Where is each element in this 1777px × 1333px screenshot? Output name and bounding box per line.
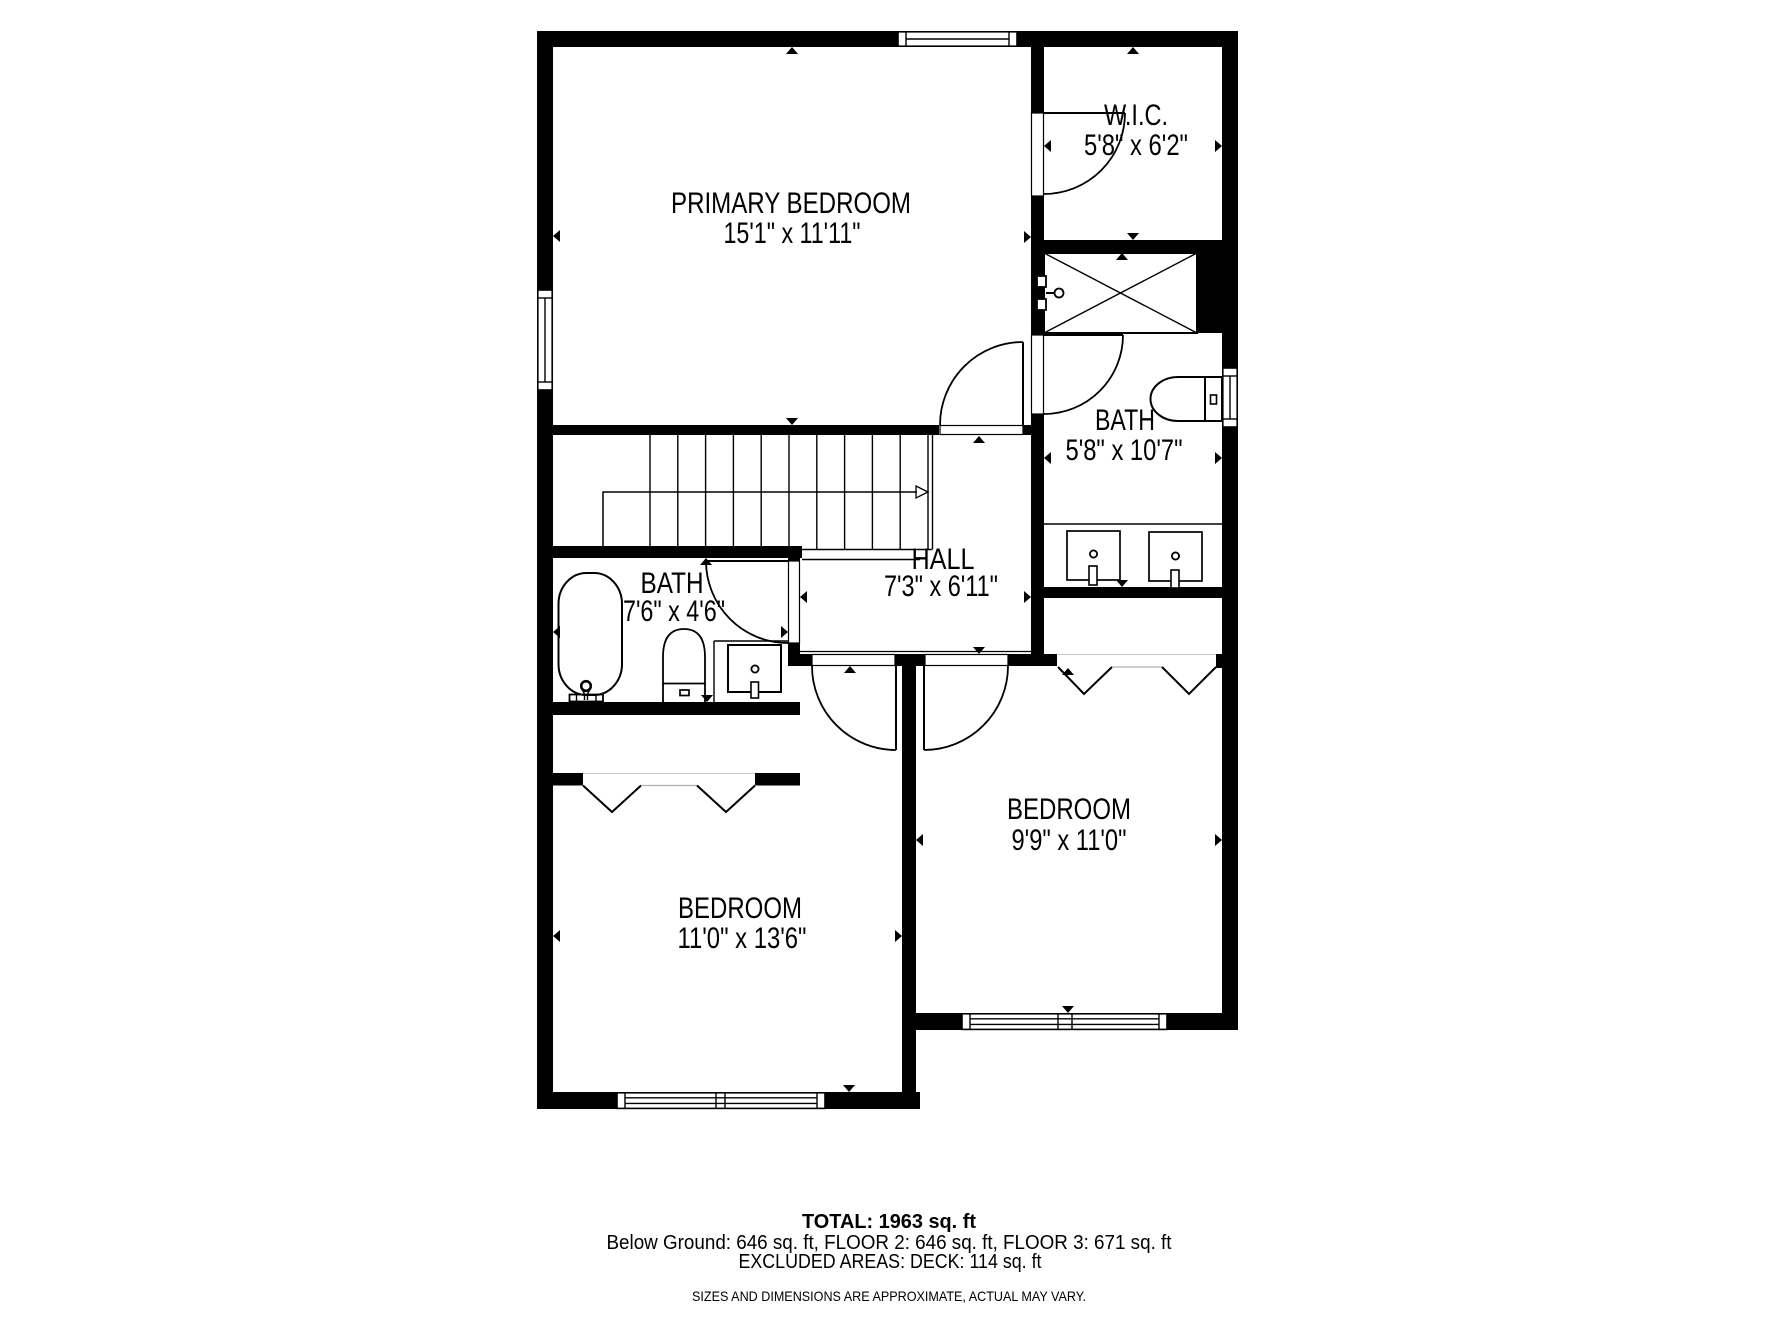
svg-text:SIZES AND DIMENSIONS ARE APPRO: SIZES AND DIMENSIONS ARE APPROXIMATE, AC… [692, 1288, 1086, 1304]
svg-text:BEDROOM: BEDROOM [678, 892, 802, 925]
svg-text:9'9" x 11'0": 9'9" x 11'0" [1012, 824, 1127, 857]
svg-text:7'3" x 6'11": 7'3" x 6'11" [884, 570, 998, 603]
svg-text:7'6" x 4'6": 7'6" x 4'6" [623, 595, 725, 628]
svg-text:EXCLUDED AREAS: DECK: 114 sq.: EXCLUDED AREAS: DECK: 114 sq. ft [739, 1251, 1042, 1273]
svg-text:5'8" x 6'2": 5'8" x 6'2" [1084, 129, 1188, 162]
svg-text:15'1" x 11'11": 15'1" x 11'11" [724, 217, 861, 250]
svg-text:W.I.C.: W.I.C. [1104, 99, 1168, 132]
svg-text:TOTAL: 1963 sq. ft: TOTAL: 1963 sq. ft [802, 1211, 976, 1233]
svg-text:5'8" x 10'7": 5'8" x 10'7" [1066, 434, 1183, 467]
svg-text:11'0" x 13'6": 11'0" x 13'6" [678, 922, 807, 955]
svg-text:PRIMARY BEDROOM: PRIMARY BEDROOM [671, 187, 911, 220]
svg-text:BATH: BATH [1095, 404, 1155, 437]
svg-text:BEDROOM: BEDROOM [1007, 793, 1131, 826]
